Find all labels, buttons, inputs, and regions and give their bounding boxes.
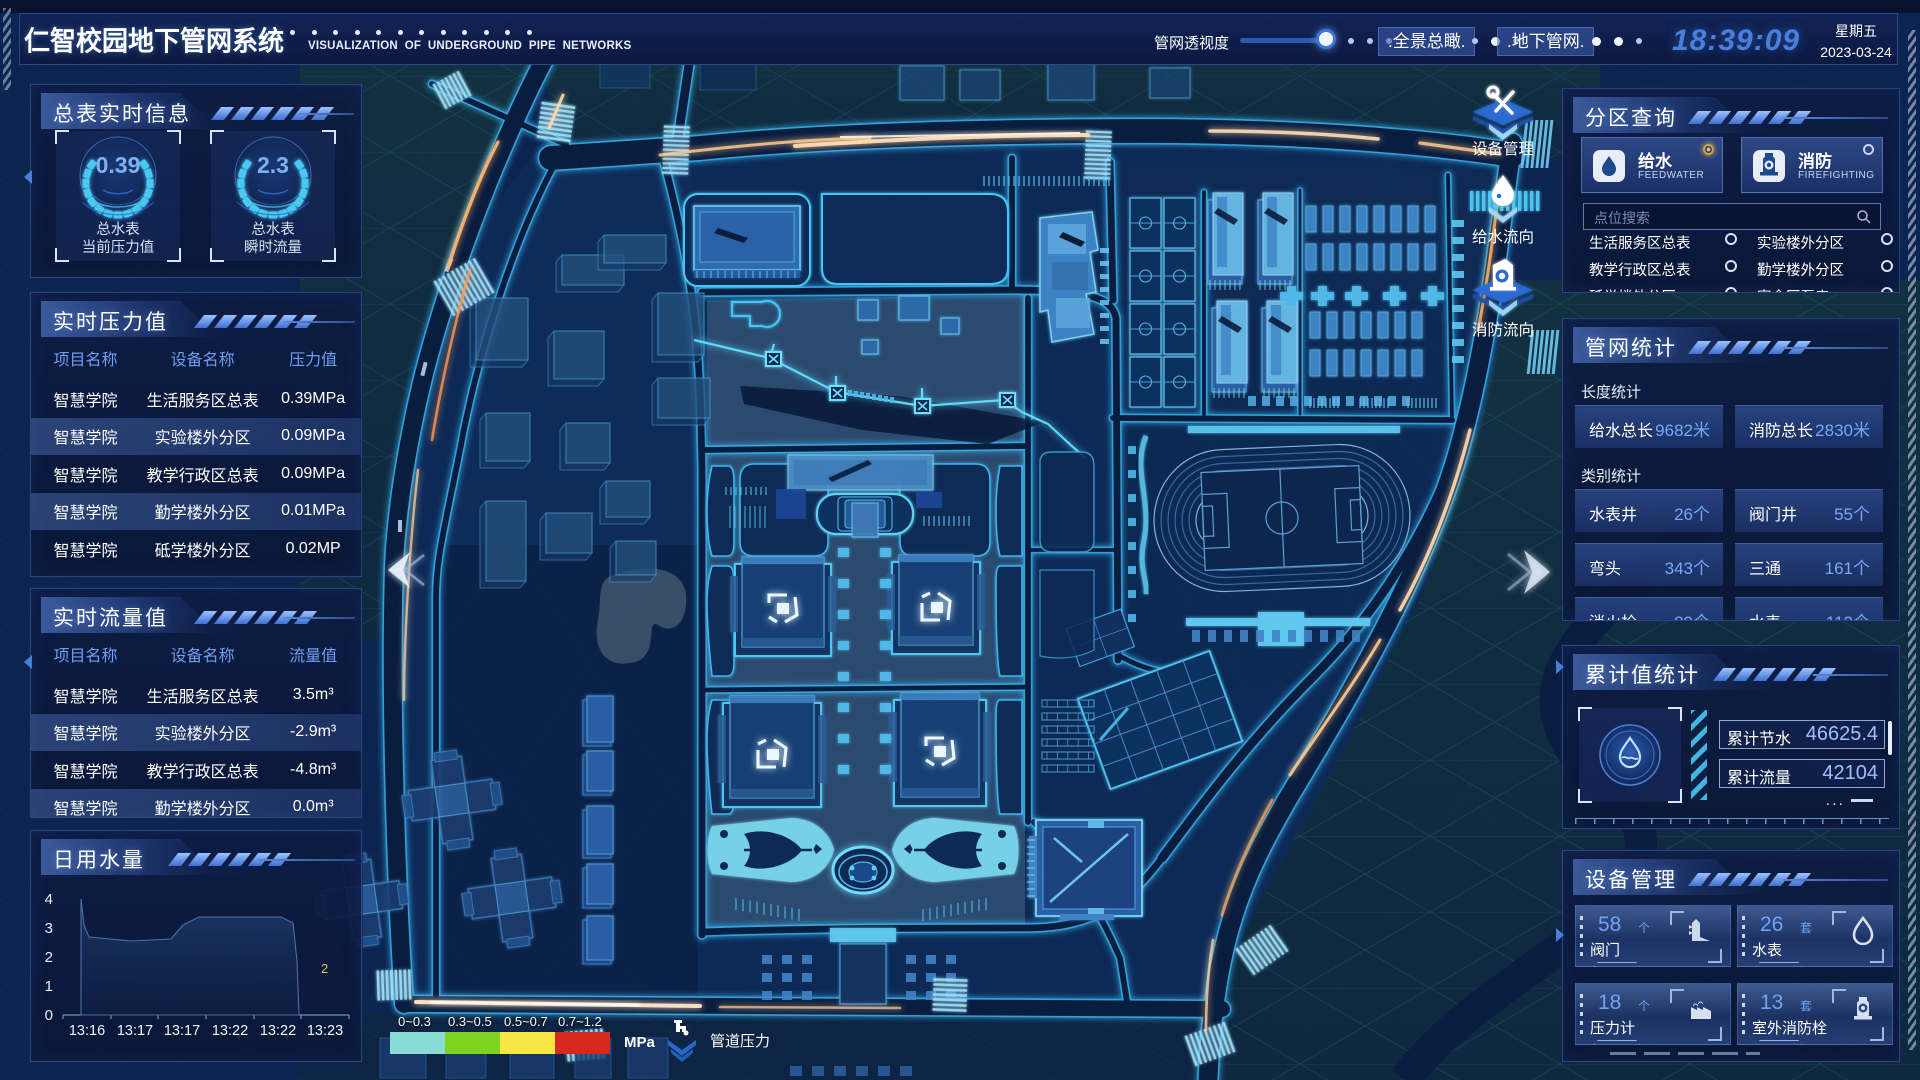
svg-text:13:23: 13:23 [307, 1023, 343, 1039]
svg-text:13:17: 13:17 [164, 1023, 200, 1039]
svg-text:13:22: 13:22 [260, 1023, 296, 1039]
svg-text:设备管理: 设备管理 [1472, 140, 1534, 158]
svg-text:3: 3 [45, 920, 53, 937]
svg-text:2: 2 [45, 949, 53, 966]
svg-text:13:16: 13:16 [69, 1023, 105, 1039]
svg-text:4: 4 [45, 891, 53, 908]
svg-text:0.39: 0.39 [96, 152, 141, 178]
svg-text:消防流向: 消防流向 [1472, 321, 1534, 339]
svg-text:0: 0 [45, 1007, 53, 1024]
svg-text:13:17: 13:17 [117, 1023, 153, 1039]
svg-text:2.3: 2.3 [257, 152, 289, 178]
svg-text:给水流向: 给水流向 [1472, 228, 1534, 246]
svg-text:13:22: 13:22 [212, 1023, 248, 1039]
svg-text:1: 1 [45, 978, 53, 995]
svg-text:2: 2 [321, 961, 328, 976]
